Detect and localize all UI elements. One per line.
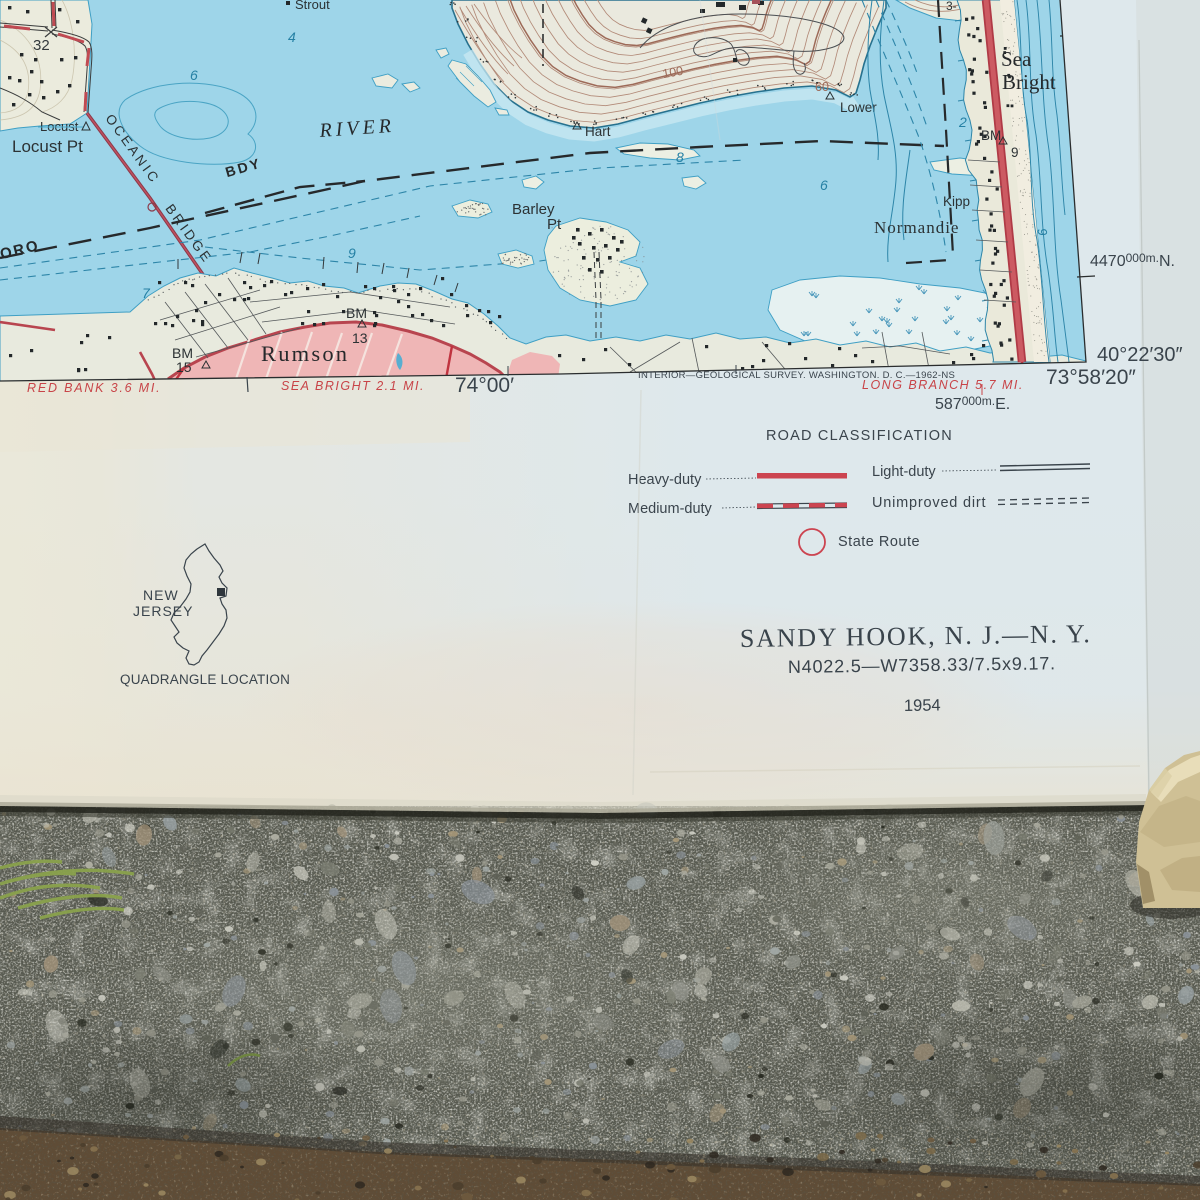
svg-text:13: 13 <box>352 330 368 346</box>
svg-text:LONG BRANCH 5.7 MI.: LONG BRANCH 5.7 MI. <box>862 378 1024 392</box>
svg-text:Normandie: Normandie <box>874 218 959 237</box>
svg-text:JERSEY: JERSEY <box>133 603 193 619</box>
svg-text:Pt: Pt <box>547 216 562 233</box>
svg-text:Medium-duty: Medium-duty <box>628 501 713 517</box>
svg-text:1954: 1954 <box>904 696 941 715</box>
svg-text:ROAD CLASSIFICATION: ROAD CLASSIFICATION <box>766 428 953 444</box>
svg-text:NEW: NEW <box>143 587 179 603</box>
svg-text:6: 6 <box>820 177 828 193</box>
svg-text:RED BANK 3.6 MI.: RED BANK 3.6 MI. <box>27 381 161 395</box>
svg-text:SEA BRIGHT 2.1 MI.: SEA BRIGHT 2.1 MI. <box>281 379 425 393</box>
svg-text:74°00′: 74°00′ <box>455 374 514 397</box>
svg-text:40°22′30″: 40°22′30″ <box>1097 344 1183 366</box>
svg-text:QUADRANGLE LOCATION: QUADRANGLE LOCATION <box>120 672 290 687</box>
svg-text:15: 15 <box>176 359 192 375</box>
svg-text:Strout: Strout <box>295 0 330 12</box>
svg-text:Kipp: Kipp <box>943 194 970 209</box>
svg-text:9: 9 <box>348 245 356 261</box>
svg-text:State Route: State Route <box>838 534 920 550</box>
svg-text:Sea: Sea <box>1001 47 1032 71</box>
svg-text:32: 32 <box>33 37 50 54</box>
svg-text:8: 8 <box>676 149 684 165</box>
svg-text:Bright: Bright <box>1002 70 1056 94</box>
svg-text:73°58′20″: 73°58′20″ <box>1046 366 1136 389</box>
svg-text:Light-duty: Light-duty <box>872 464 936 480</box>
svg-text:Rumson: Rumson <box>261 341 349 366</box>
svg-text:SANDY HOOK, N. J.—N. Y.: SANDY HOOK, N. J.—N. Y. <box>740 619 1092 653</box>
svg-text:6: 6 <box>190 67 198 83</box>
svg-text:BM: BM <box>981 128 1001 143</box>
svg-text:Unimproved dirt: Unimproved dirt <box>872 495 986 511</box>
svg-text:BM: BM <box>346 305 367 321</box>
svg-text:2: 2 <box>958 114 967 130</box>
svg-text:Hart: Hart <box>585 124 611 139</box>
svg-text:9: 9 <box>1011 145 1019 160</box>
svg-text:N4022.5—W7358.33/7.5x9.17.: N4022.5—W7358.33/7.5x9.17. <box>788 653 1056 677</box>
svg-text:4: 4 <box>288 29 296 45</box>
svg-text:Locust Pt: Locust Pt <box>12 137 83 156</box>
svg-text:3-: 3- <box>946 0 957 13</box>
